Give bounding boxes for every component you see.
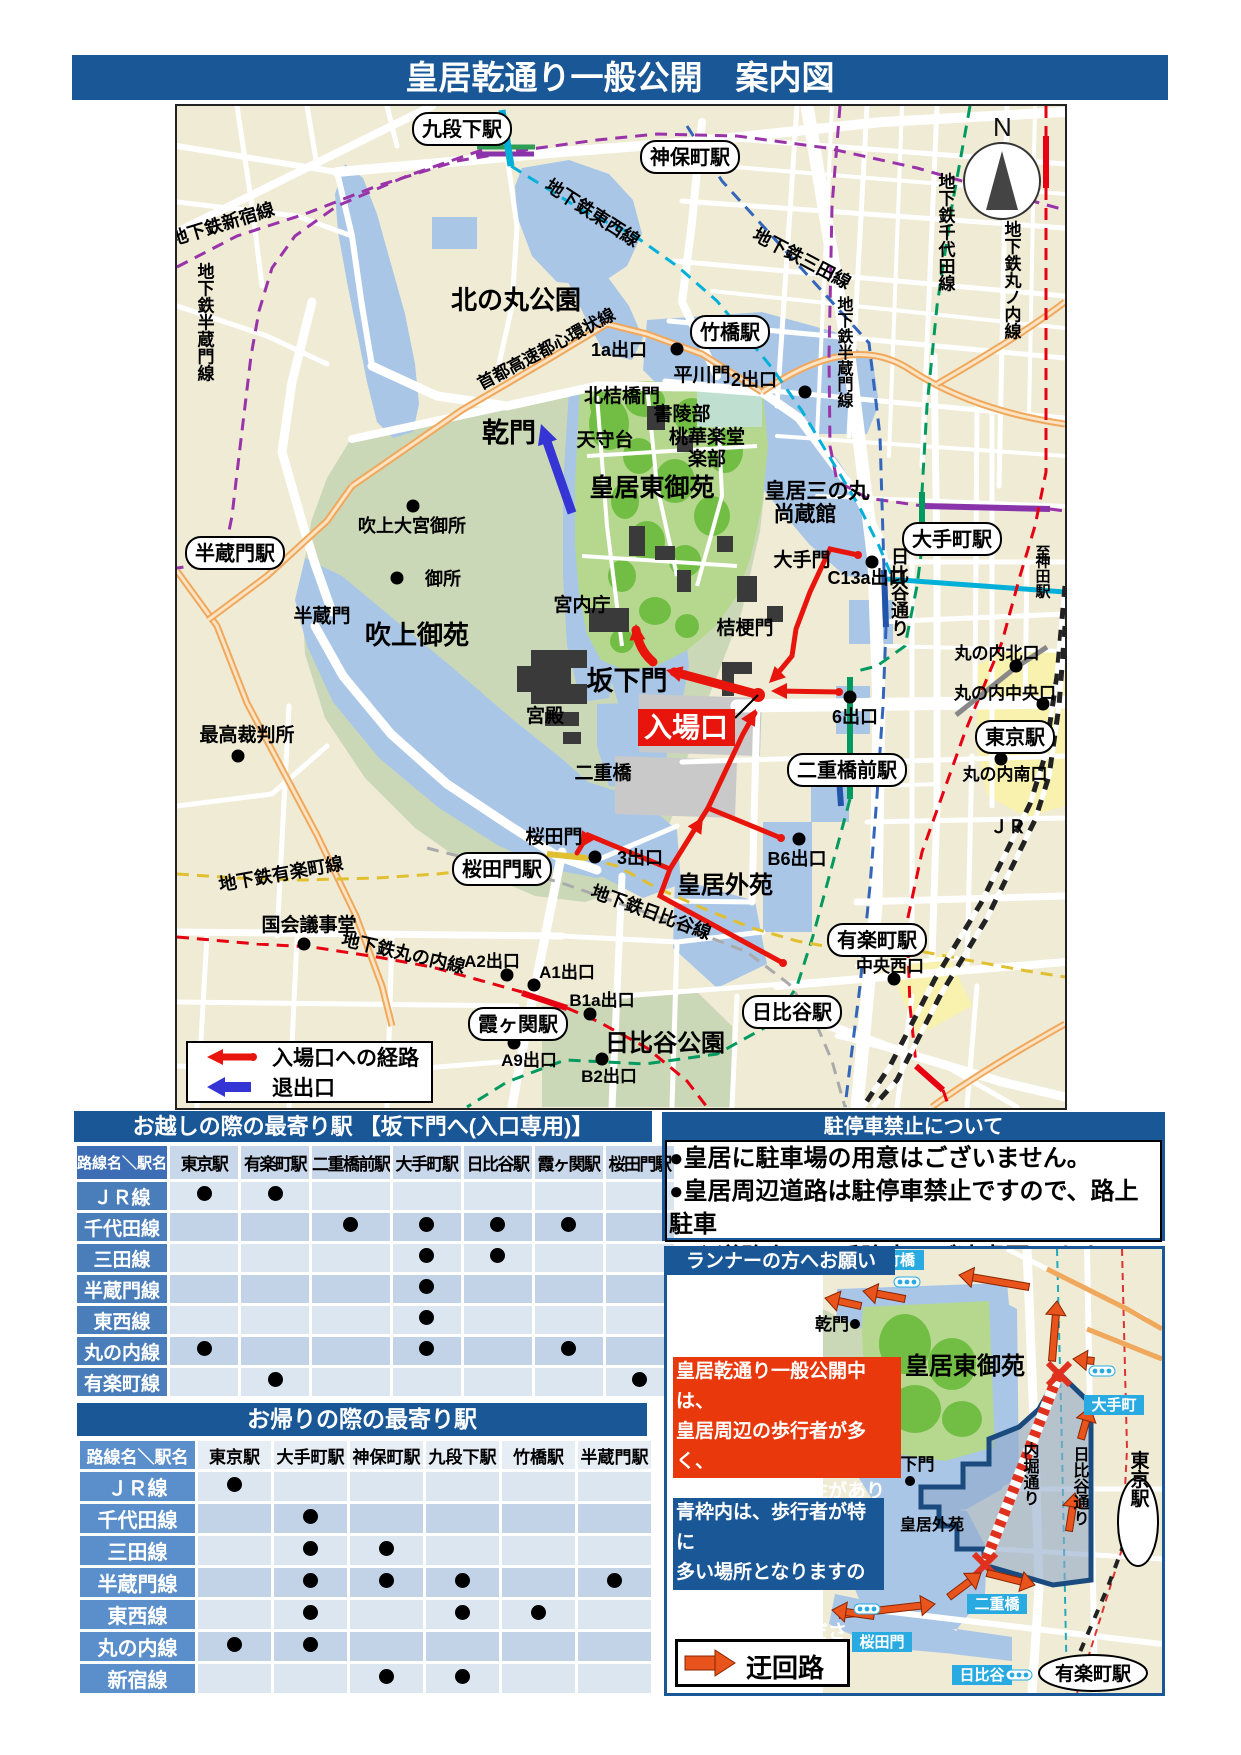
svg-text:二重橋: 二重橋 — [574, 761, 632, 784]
svg-text:退出口: 退出口 — [272, 1077, 335, 1100]
svg-text:日比谷駅: 日比谷駅 — [752, 1001, 832, 1024]
svg-text:竹橋駅: 竹橋駅 — [699, 320, 760, 344]
svg-text:B2出口: B2出口 — [581, 1066, 637, 1086]
svg-text:最高裁判所: 最高裁判所 — [199, 723, 294, 746]
svg-text:神田駅: 神田駅 — [1034, 553, 1052, 600]
svg-text:二重橋前駅: 二重橋前駅 — [797, 758, 897, 782]
svg-text:皇居外苑: 皇居外苑 — [900, 1515, 964, 1534]
svg-text:東京駅: 東京駅 — [985, 725, 1045, 749]
svg-text:2出口: 2出口 — [731, 369, 777, 390]
svg-text:入場口への経路: 入場口への経路 — [272, 1046, 420, 1070]
svg-text:乾門: 乾門 — [482, 418, 536, 448]
svg-text:皇居外苑: 皇居外苑 — [677, 871, 773, 899]
svg-text:ＪＲ: ＪＲ — [990, 817, 1026, 837]
svg-text:A2出口: A2出口 — [464, 951, 520, 971]
svg-text:1a出口: 1a出口 — [591, 339, 647, 360]
svg-text:丸の内南口: 丸の内南口 — [962, 764, 1048, 784]
svg-text:地下鉄半蔵門線: 地下鉄半蔵門線 — [195, 261, 215, 382]
svg-text:宮内庁: 宮内庁 — [553, 593, 610, 616]
svg-text:皇居三の丸: 皇居三の丸 — [765, 480, 871, 503]
svg-text:北桔橋門: 北桔橋門 — [584, 384, 660, 407]
svg-text:丸の内北口: 丸の内北口 — [954, 643, 1040, 663]
svg-text:東京駅: 東京駅 — [1128, 1449, 1151, 1508]
svg-text:中央西口: 中央西口 — [856, 956, 924, 976]
svg-text:丸の内中央口: 丸の内中央口 — [953, 683, 1056, 703]
svg-text:吹上御苑: 吹上御苑 — [365, 620, 469, 650]
svg-text:半蔵門駅: 半蔵門駅 — [195, 541, 275, 565]
svg-text:A9出口: A9出口 — [501, 1050, 557, 1070]
svg-text:地下鉄丸ノ内線: 地下鉄丸ノ内線 — [1002, 219, 1023, 340]
svg-text:九段下駅: 九段下駅 — [421, 117, 502, 141]
svg-text:地下鉄半蔵門線: 地下鉄半蔵門線 — [835, 295, 854, 409]
svg-text:楽部: 楽部 — [688, 447, 726, 470]
svg-text:地下鉄千代田線: 地下鉄千代田線 — [936, 171, 957, 292]
svg-text:乾門: 乾門 — [815, 1314, 849, 1334]
svg-text:日比谷通り: 日比谷通り — [1071, 1446, 1090, 1526]
svg-text:半蔵門: 半蔵門 — [293, 604, 350, 627]
svg-text:大手町: 大手町 — [1091, 1396, 1136, 1414]
svg-text:吹上大宮御所: 吹上大宮御所 — [358, 515, 466, 536]
svg-text:6出口: 6出口 — [832, 706, 878, 727]
svg-text:B1a出口: B1a出口 — [569, 990, 634, 1010]
svg-text:桜田門: 桜田門 — [859, 1633, 904, 1651]
svg-text:B6出口: B6出口 — [767, 848, 826, 869]
svg-text:平川門: 平川門 — [673, 364, 730, 386]
svg-text:日比谷通り: 日比谷通り — [889, 547, 909, 637]
svg-text:有楽町駅: 有楽町駅 — [1055, 1662, 1132, 1685]
svg-text:尚蔵館: 尚蔵館 — [774, 502, 837, 526]
svg-text:桜田門: 桜田門 — [525, 825, 582, 848]
svg-text:皇居東御苑: 皇居東御苑 — [589, 473, 714, 502]
svg-text:日比谷公園: 日比谷公園 — [605, 1030, 725, 1057]
svg-text:二重橋: 二重橋 — [974, 1595, 1020, 1613]
svg-text:有楽町駅: 有楽町駅 — [837, 928, 917, 952]
svg-text:N: N — [993, 112, 1012, 142]
svg-text:内堀通り: 内堀通り — [1021, 1441, 1040, 1506]
svg-text:天守台: 天守台 — [576, 428, 633, 451]
svg-text:坂下門: 坂下門 — [587, 666, 668, 696]
svg-text:入場口: 入場口 — [644, 712, 728, 743]
svg-text:北の丸公園: 北の丸公園 — [451, 285, 581, 315]
svg-text:皇居東御苑: 皇居東御苑 — [905, 1353, 1025, 1380]
svg-text:国会議事堂: 国会議事堂 — [261, 913, 356, 936]
svg-text:神保町駅: 神保町駅 — [650, 145, 730, 169]
svg-text:書陵部: 書陵部 — [653, 402, 710, 425]
svg-text:大手門: 大手門 — [773, 548, 830, 571]
svg-text:日比谷: 日比谷 — [959, 1666, 1005, 1684]
svg-text:霞ヶ関駅: 霞ヶ関駅 — [478, 1013, 558, 1036]
svg-text:御所: 御所 — [424, 568, 461, 589]
svg-text:A1出口: A1出口 — [539, 962, 595, 982]
svg-text:桜田門駅: 桜田門駅 — [462, 858, 542, 881]
svg-text:大手町駅: 大手町駅 — [912, 527, 992, 551]
svg-text:3出口: 3出口 — [617, 847, 663, 868]
svg-text:桃華楽堂: 桃華楽堂 — [669, 425, 745, 448]
svg-text:宮殿: 宮殿 — [526, 704, 565, 727]
svg-text:桔梗門: 桔梗門 — [716, 616, 773, 639]
